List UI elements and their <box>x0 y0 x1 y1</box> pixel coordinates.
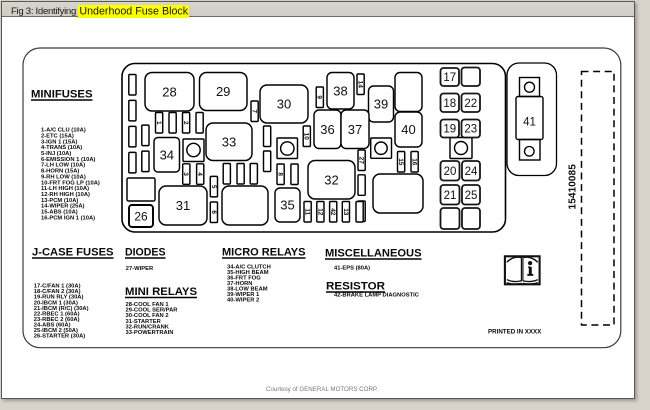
svg-text:MISCELLANEOUS: MISCELLANEOUS <box>325 248 422 260</box>
svg-text:12: 12 <box>316 208 323 216</box>
svg-text:26: 26 <box>134 209 148 223</box>
svg-text:7: 7 <box>251 109 258 113</box>
svg-text:39: 39 <box>374 97 388 112</box>
svg-text:41: 41 <box>523 117 536 129</box>
svg-text:27-WIPER: 27-WIPER <box>126 266 154 272</box>
svg-text:18: 18 <box>443 98 456 110</box>
svg-text:27: 27 <box>358 157 365 165</box>
svg-text:33: 33 <box>222 134 236 149</box>
svg-text:38: 38 <box>333 83 347 98</box>
svg-text:2: 2 <box>182 121 189 125</box>
svg-text:MICRO RELAYS: MICRO RELAYS <box>222 247 306 259</box>
svg-text:31: 31 <box>176 198 190 213</box>
svg-text:37: 37 <box>348 122 362 137</box>
svg-text:MINI RELAYS: MINI RELAYS <box>125 286 197 298</box>
svg-text:30: 30 <box>277 97 291 112</box>
svg-text:20: 20 <box>444 166 457 178</box>
svg-text:15410085: 15410085 <box>567 164 578 210</box>
svg-text:19: 19 <box>443 124 456 136</box>
svg-text:14: 14 <box>357 81 364 89</box>
svg-text:Courtesy of GENERAL MOTORS COR: Courtesy of GENERAL MOTORS CORP. <box>266 386 378 393</box>
svg-text:3: 3 <box>182 172 189 176</box>
svg-text:16: 16 <box>411 158 418 166</box>
svg-text:26-STARTER (30A): 26-STARTER (30A) <box>34 334 85 340</box>
svg-text:13: 13 <box>342 208 349 216</box>
svg-text:35: 35 <box>280 198 294 213</box>
svg-text:25: 25 <box>465 190 478 202</box>
svg-text:RESISTOR: RESISTOR <box>326 281 385 293</box>
svg-text:41-EPS (80A): 41-EPS (80A) <box>334 265 370 271</box>
svg-text:15: 15 <box>397 158 404 166</box>
svg-text:40: 40 <box>401 122 415 137</box>
svg-text:J-CASE FUSES: J-CASE FUSES <box>32 247 114 259</box>
svg-text:PRINTED IN XXXX: PRINTED IN XXXX <box>488 328 542 335</box>
svg-text:MINIFUSES: MINIFUSES <box>31 89 93 101</box>
svg-text:42: 42 <box>329 208 336 216</box>
svg-text:21: 21 <box>444 190 457 202</box>
svg-text:5: 5 <box>210 185 217 189</box>
svg-text:40-WIPER 2: 40-WIPER 2 <box>227 298 259 304</box>
svg-text:36: 36 <box>320 122 334 137</box>
svg-text:23: 23 <box>464 124 477 136</box>
svg-text:1: 1 <box>155 121 162 125</box>
svg-text:10: 10 <box>303 133 310 141</box>
svg-text:8: 8 <box>277 172 284 176</box>
svg-text:11: 11 <box>304 208 311 215</box>
svg-text:6: 6 <box>210 210 217 214</box>
svg-text:34: 34 <box>160 147 174 162</box>
svg-text:29: 29 <box>216 84 230 99</box>
svg-text:DIODES: DIODES <box>125 247 166 259</box>
svg-text:4: 4 <box>196 172 203 176</box>
svg-text:42-BRAKE LAMP DIAGNOSTIC: 42-BRAKE LAMP DIAGNOSTIC <box>334 293 420 299</box>
svg-text:33-POWERTRAIN: 33-POWERTRAIN <box>126 330 174 336</box>
svg-text:24: 24 <box>465 166 478 178</box>
svg-text:32: 32 <box>324 172 338 187</box>
svg-text:17: 17 <box>443 72 456 84</box>
svg-text:28: 28 <box>162 84 176 99</box>
svg-text:22: 22 <box>464 98 477 110</box>
svg-text:16-PCM IGN 1 (10A): 16-PCM IGN 1 (10A) <box>41 215 95 221</box>
svg-text:9: 9 <box>316 95 323 99</box>
